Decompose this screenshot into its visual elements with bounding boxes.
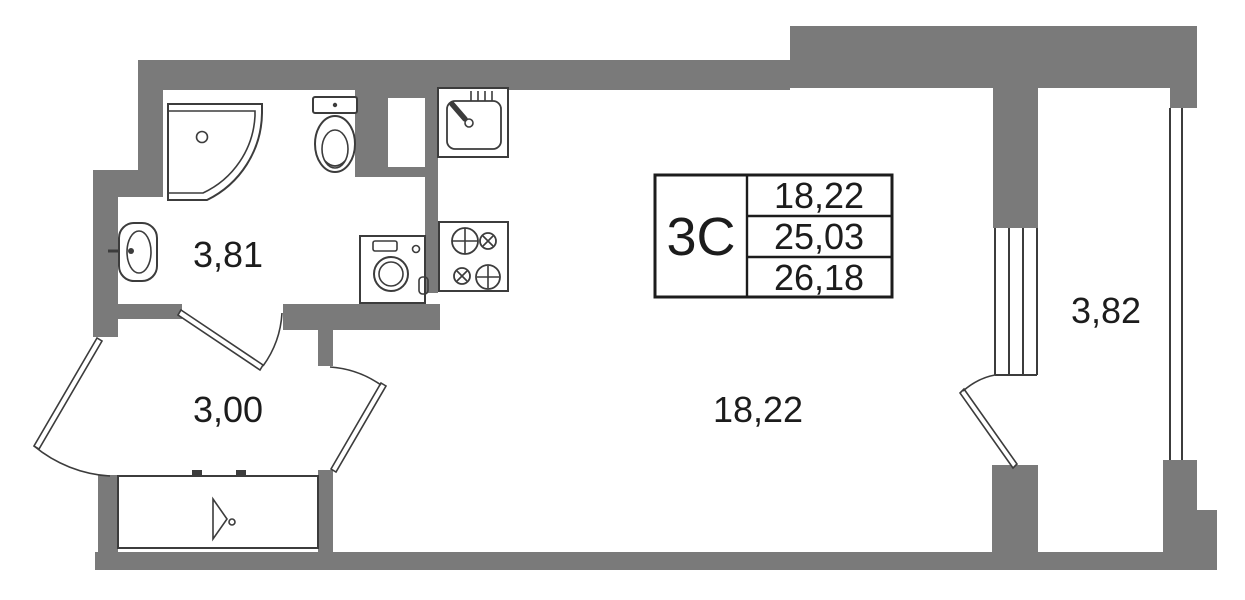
balcony-door-swing-icon [960, 375, 1017, 468]
wall-bathroom-left [138, 60, 163, 197]
washing-machine-icon [360, 236, 428, 303]
wall-bathroom-kitchen [425, 88, 438, 293]
threshold-tick [192, 470, 202, 477]
wall-shaft-left [355, 88, 388, 177]
door-arc [330, 367, 381, 385]
door-arc [263, 313, 282, 366]
balcony-glazing-icon [1170, 108, 1182, 460]
wall-top-left-segment [138, 60, 790, 90]
door-leaf [178, 310, 263, 370]
wall-bathroom-bottom-left [118, 304, 182, 319]
floorplan-drawing: 3С 18,22 25,03 26,18 3,81 3,00 18,22 3,8… [0, 0, 1245, 600]
wall-left-step [93, 170, 138, 197]
wall-bathroom-bottom-right [283, 304, 440, 330]
sink-tap-knob [465, 119, 473, 127]
balcony-window-icon [995, 228, 1037, 375]
toilet-icon [313, 97, 357, 172]
hallway-area-label: 3,00 [193, 389, 263, 430]
stove-icon [439, 222, 508, 291]
unit-type-label: 3С [666, 207, 735, 267]
door-arc [963, 375, 995, 391]
door-leaf [960, 389, 1017, 468]
wall-shaft-top [388, 88, 425, 98]
block-balcony-top-right [1170, 88, 1197, 108]
kitchen-sink-icon [438, 88, 508, 157]
bathroom-door-swing-icon [178, 310, 282, 370]
toilet-bowl [315, 116, 355, 172]
wall-bottom [95, 552, 1197, 570]
block-balcony-bottom-right [1163, 460, 1197, 570]
shower-drain [197, 132, 208, 143]
basin-tap-knob [128, 248, 134, 254]
pillar-balcony-top [993, 88, 1038, 228]
threshold-tick [236, 470, 246, 477]
toilet-button [333, 103, 337, 107]
floorplan-page: 3С 18,22 25,03 26,18 3,81 3,00 18,22 3,8… [0, 0, 1245, 600]
door-arc [34, 446, 110, 476]
pillar-balcony-bottom [992, 465, 1038, 552]
balcony-area-label: 3,82 [1071, 290, 1141, 331]
wall-hall-room-upper [318, 304, 333, 366]
vestibule [118, 470, 318, 548]
wall-top-right-segment [790, 26, 1197, 88]
wall-hall-room-lower [318, 470, 333, 552]
door-leaf [34, 338, 102, 449]
hallway-door-swing-icon [330, 367, 386, 472]
unit-info-table: 3С 18,22 25,03 26,18 [655, 175, 892, 298]
shower-icon [168, 104, 262, 200]
table-value-3: 26,18 [774, 257, 864, 298]
table-value-1: 18,22 [774, 175, 864, 216]
door-leaf [331, 383, 386, 472]
block-balcony-bottom-step [1197, 510, 1217, 570]
wall-left-protrusion [93, 197, 118, 337]
entry-bay-door-swing-icon [34, 338, 110, 476]
bathroom-area-label: 3,81 [193, 234, 263, 275]
wall-shaft-bottom [355, 167, 438, 177]
table-value-2: 25,03 [774, 216, 864, 257]
living-room-area-label: 18,22 [713, 389, 803, 430]
wall-vestibule-left [98, 475, 118, 552]
